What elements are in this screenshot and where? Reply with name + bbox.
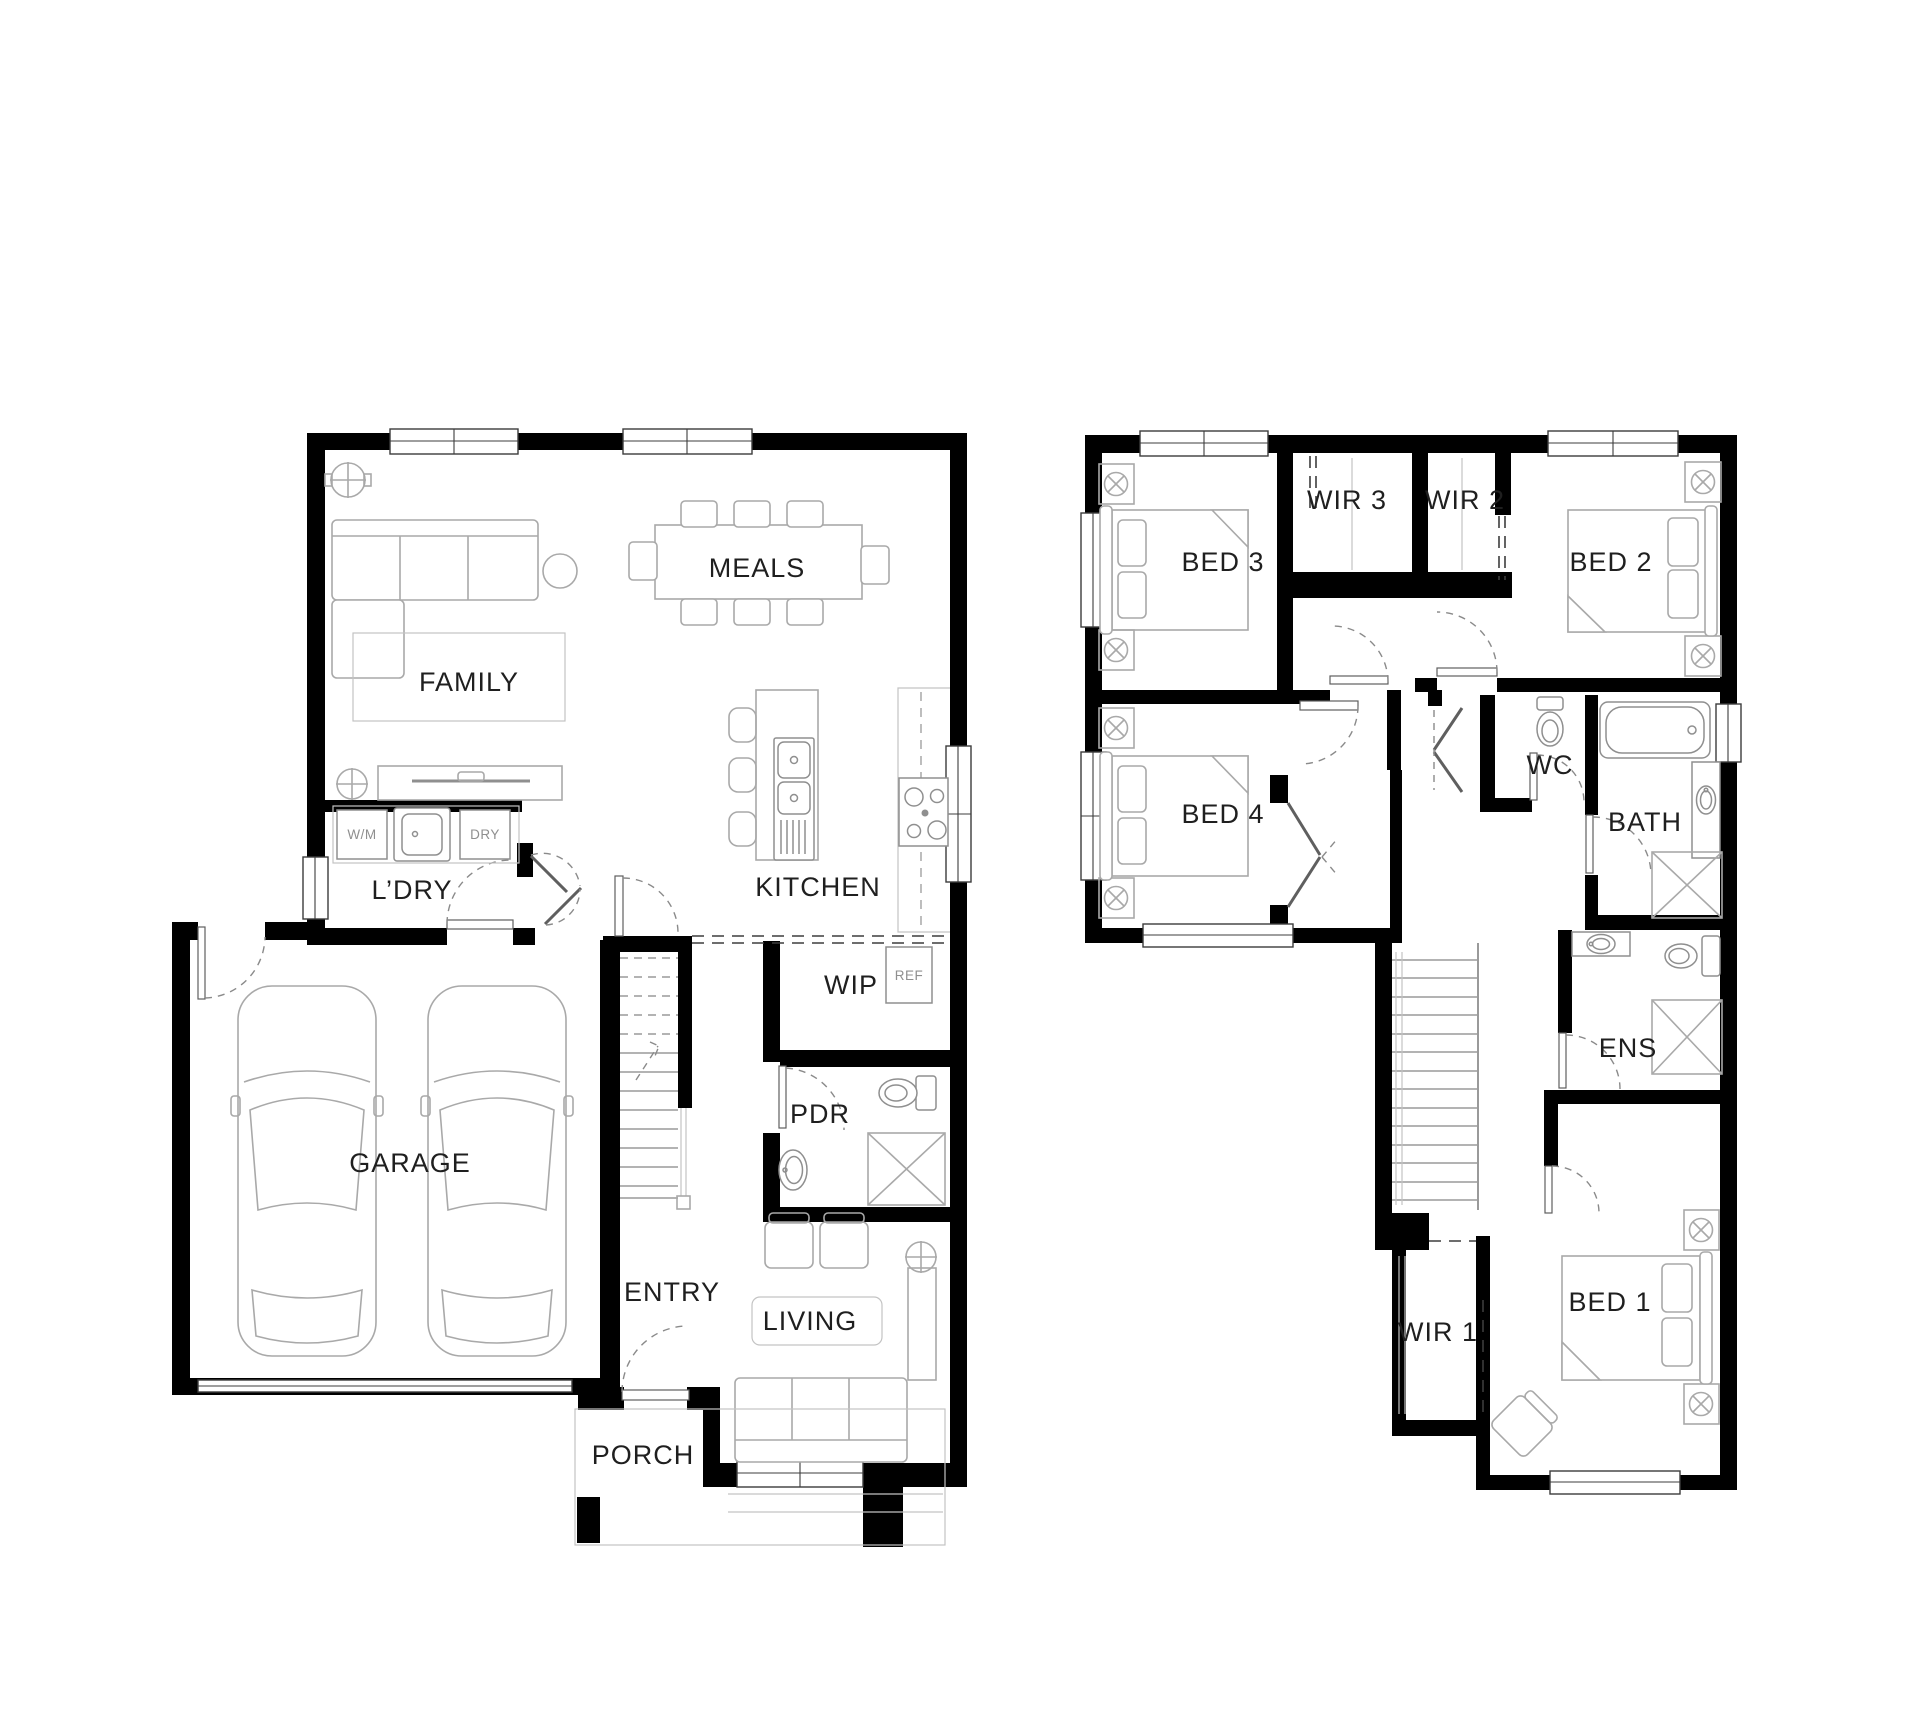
window bbox=[303, 857, 328, 919]
entry-label: ENTRY bbox=[624, 1277, 720, 1307]
laundry-sink-icon bbox=[394, 808, 450, 861]
kitchen-sink-icon bbox=[774, 738, 814, 860]
bedside-table-icon bbox=[1099, 708, 1134, 748]
shower-icon bbox=[868, 1133, 945, 1205]
window bbox=[623, 429, 752, 454]
door-swing bbox=[447, 860, 513, 929]
ceiling-fan-icon bbox=[336, 768, 368, 800]
staircase bbox=[1392, 943, 1478, 1210]
shower-icon bbox=[1652, 1000, 1722, 1074]
vanity-basin-icon bbox=[1572, 932, 1630, 956]
front-door-swing bbox=[622, 1326, 689, 1400]
door-swing bbox=[1545, 1166, 1599, 1213]
bed-icon bbox=[1562, 1252, 1712, 1384]
ground-floor-plan: W/M DRY bbox=[172, 429, 971, 1547]
family-room-furniture bbox=[325, 462, 577, 800]
window bbox=[1550, 1471, 1680, 1494]
floor-plan-drawing: W/M DRY bbox=[0, 0, 1920, 1717]
shower-icon bbox=[1652, 852, 1722, 918]
door-swing bbox=[1437, 612, 1497, 676]
window bbox=[390, 429, 518, 454]
washing-machine-label: W/M bbox=[347, 827, 376, 842]
ens-label: ENS bbox=[1599, 1033, 1658, 1063]
laundry-bench: W/M DRY bbox=[333, 806, 519, 863]
pantry-fixtures: REF bbox=[886, 947, 932, 1003]
cooktop-icon bbox=[899, 778, 948, 846]
window bbox=[1716, 704, 1741, 762]
linen-bifold-doors bbox=[1434, 708, 1462, 792]
side-table-icon bbox=[543, 554, 577, 588]
window bbox=[737, 1459, 863, 1487]
powder-label: PDR bbox=[790, 1099, 850, 1129]
wir3-label: WIR 3 bbox=[1307, 485, 1387, 515]
door-swing bbox=[1300, 701, 1358, 764]
bedside-table-icon bbox=[1099, 464, 1134, 504]
bathtub-icon bbox=[1600, 702, 1710, 758]
window bbox=[1140, 431, 1268, 456]
garage-door bbox=[198, 1380, 572, 1392]
wc-label: WC bbox=[1527, 750, 1574, 780]
wir2-label: WIR 2 bbox=[1425, 485, 1505, 515]
bed4-label: BED 4 bbox=[1181, 799, 1264, 829]
pantry-label: WIP bbox=[824, 970, 878, 1000]
bed1-label: BED 1 bbox=[1568, 1287, 1651, 1317]
family-label: FAMILY bbox=[419, 667, 519, 697]
door-swing bbox=[198, 927, 265, 999]
basin-icon bbox=[779, 1150, 807, 1190]
sofa-icon bbox=[735, 1378, 907, 1462]
bedside-table-icon bbox=[1685, 462, 1721, 502]
bed3-label: BED 3 bbox=[1181, 547, 1264, 577]
bedside-table-icon bbox=[1099, 878, 1134, 918]
bedside-table-icon bbox=[1685, 636, 1721, 676]
laundry-label: L’DRY bbox=[371, 875, 452, 905]
dryer-label: DRY bbox=[470, 827, 500, 842]
living-furniture bbox=[735, 1213, 937, 1462]
porch-label: PORCH bbox=[592, 1440, 695, 1470]
window bbox=[946, 746, 971, 882]
window bbox=[1548, 431, 1678, 456]
garage-label: GARAGE bbox=[349, 1148, 471, 1178]
bedside-table-icon bbox=[1684, 1384, 1719, 1424]
wir1-label: WIR 1 bbox=[1398, 1317, 1478, 1347]
bed2-label: BED 2 bbox=[1569, 547, 1652, 577]
toilet-icon bbox=[1665, 936, 1720, 976]
powder-room-fixtures bbox=[779, 1076, 945, 1205]
wc-fixtures bbox=[1537, 697, 1563, 746]
door-swing bbox=[1330, 626, 1388, 684]
living-label: LIVING bbox=[763, 1306, 858, 1336]
bath-label: BATH bbox=[1608, 807, 1682, 837]
floor-plan-page: W/M DRY bbox=[0, 0, 1920, 1717]
sofa-icon bbox=[332, 520, 538, 678]
window bbox=[1143, 924, 1293, 947]
armchair-icon bbox=[1489, 1386, 1561, 1458]
fridge-label: REF bbox=[895, 968, 924, 983]
door-swing bbox=[531, 853, 581, 925]
ceiling-fan-icon bbox=[325, 462, 371, 498]
armchair-icon bbox=[765, 1213, 813, 1268]
cabinet-icon bbox=[908, 1268, 936, 1380]
stool-icon bbox=[729, 812, 756, 846]
first-floor-plan: BED 3 WIR 3 WIR 2 BED 2 BED 4 WC BATH EN… bbox=[1081, 431, 1741, 1494]
bed1-furniture bbox=[1489, 1210, 1719, 1459]
stool-icon bbox=[729, 758, 756, 792]
stool-icon bbox=[729, 708, 756, 742]
toilet-icon bbox=[879, 1076, 936, 1110]
vanity-basin-icon bbox=[1692, 762, 1720, 858]
armchair-icon bbox=[820, 1213, 868, 1268]
door-swing bbox=[615, 876, 678, 936]
bifold-robe-doors bbox=[1288, 803, 1338, 907]
bedside-table-icon bbox=[1099, 630, 1134, 670]
toilet-icon bbox=[1537, 697, 1563, 746]
bedside-table-icon bbox=[1684, 1210, 1719, 1250]
kitchen-label: KITCHEN bbox=[755, 872, 881, 902]
tv-unit-icon bbox=[378, 766, 562, 800]
meals-label: MEALS bbox=[709, 553, 806, 583]
